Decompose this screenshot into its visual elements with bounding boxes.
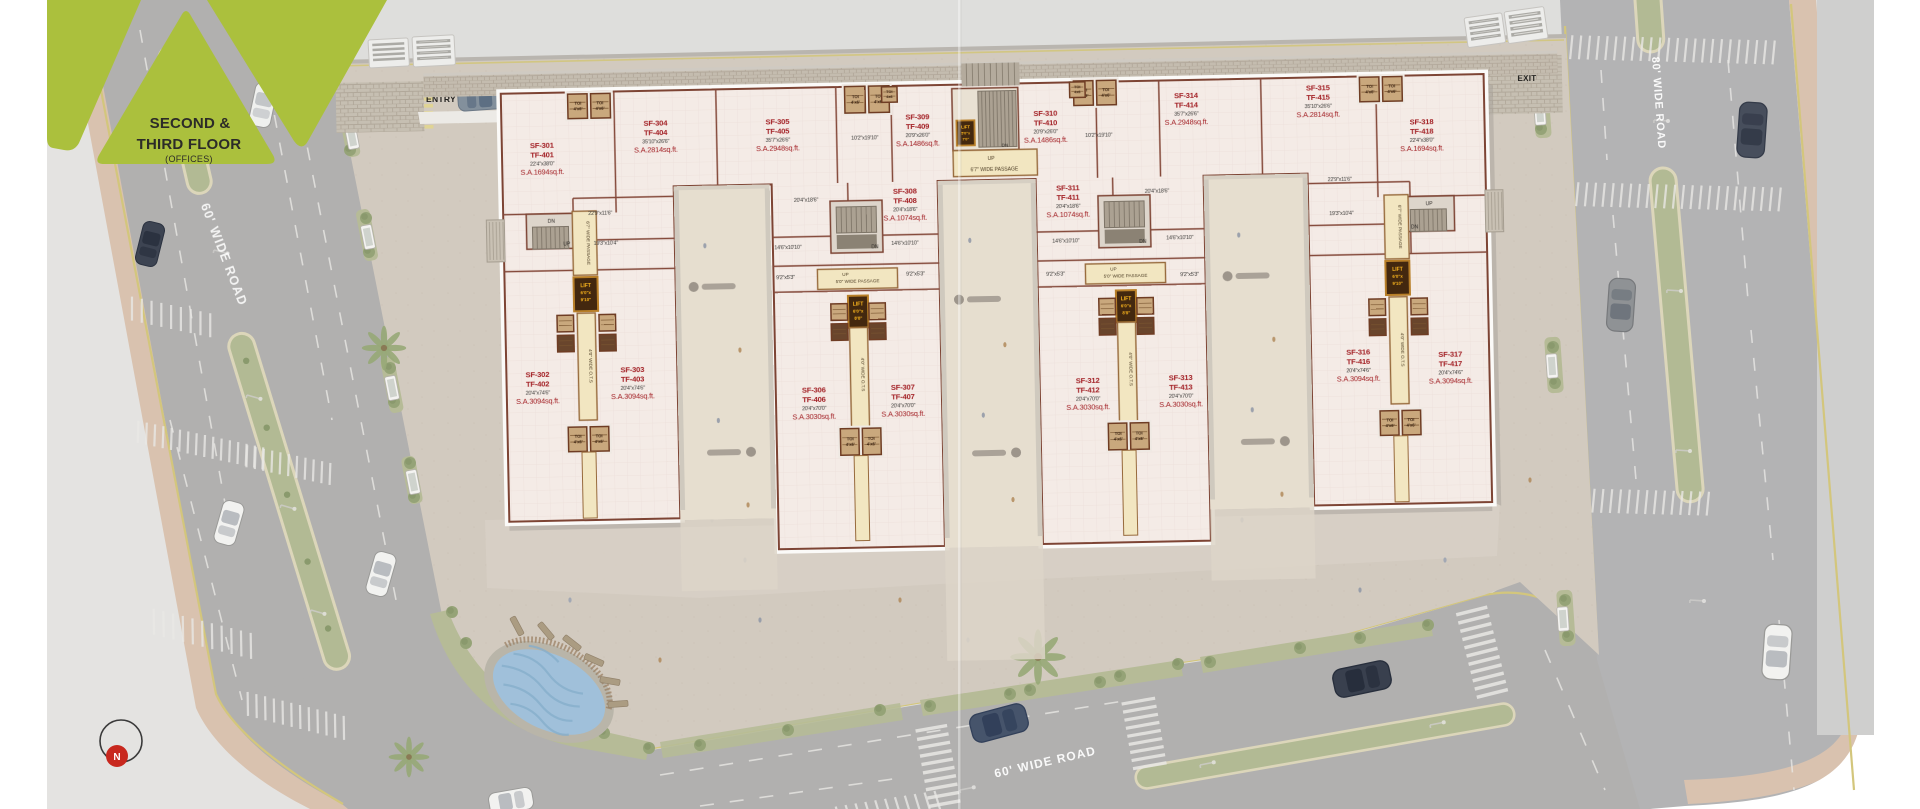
svg-text:5'0" WIDE PASSAGE: 5'0" WIDE PASSAGE [1104,273,1148,279]
svg-text:UP: UP [1426,201,1434,207]
svg-text:S.A.2814sq.ft.: S.A.2814sq.ft. [634,145,678,155]
svg-text:DN: DN [1411,224,1419,230]
svg-text:TF-404: TF-404 [644,128,668,137]
svg-text:TOI: TOI [596,100,603,105]
svg-text:TF-407: TF-407 [891,392,914,401]
svg-text:9'2"x5'3": 9'2"x5'3" [1180,272,1199,278]
svg-text:S.A.3094sq.ft.: S.A.3094sq.ft. [516,396,560,406]
svg-text:TOI: TOI [1366,84,1373,89]
svg-text:6'0"x: 6'0"x [1121,303,1132,308]
svg-text:TOI: TOI [1102,87,1109,92]
svg-text:19'3"x10'4": 19'3"x10'4" [1329,211,1354,217]
svg-text:20'4"x18'6": 20'4"x18'6" [794,197,819,203]
svg-text:4'x6': 4'x6' [846,442,855,447]
svg-text:6'7" WIDE PASSAGE: 6'7" WIDE PASSAGE [585,221,591,265]
svg-text:S.A.3030sq.ft.: S.A.3030sq.ft. [881,409,925,419]
svg-text:6'0"x: 6'0"x [1392,274,1403,279]
svg-text:4'x6': 4'x6' [1407,422,1416,427]
svg-text:TOI: TOI [575,434,582,439]
svg-text:LIFT: LIFT [580,283,591,289]
svg-text:LIFT: LIFT [1392,267,1403,273]
svg-text:4'x6': 4'x6' [867,441,876,446]
svg-text:TF-402: TF-402 [526,379,549,388]
svg-text:LIFT: LIFT [853,302,864,308]
svg-text:UP: UP [988,156,996,162]
svg-text:SF-308: SF-308 [893,186,917,195]
svg-text:4'0" WIDE O.T.S: 4'0" WIDE O.T.S [588,349,594,383]
svg-text:4'x6': 4'x6' [851,100,860,105]
svg-text:5'0" WIDE PASSAGE: 5'0" WIDE PASSAGE [836,278,880,284]
svg-text:SF-318: SF-318 [1410,117,1434,126]
svg-text:9'10": 9'10" [581,297,592,302]
svg-text:10'2"x19'10": 10'2"x19'10" [1085,133,1113,140]
svg-text:LIFT: LIFT [1121,296,1132,302]
svg-text:6'0"x: 6'0"x [853,309,864,314]
svg-text:TOI: TOI [875,94,882,99]
svg-text:4'x6': 4'x6' [1101,93,1110,98]
svg-text:9'2"x5'3": 9'2"x5'3" [776,275,795,281]
svg-text:S.A.1486sq.ft.: S.A.1486sq.ft. [896,138,940,148]
svg-text:4'x6': 4'x6' [1386,423,1395,428]
svg-text:20'4"x18'6": 20'4"x18'6" [1145,188,1170,194]
svg-text:SF-306: SF-306 [802,385,826,394]
svg-text:TOI: TOI [1115,431,1122,436]
svg-text:S.A.1694sq.ft.: S.A.1694sq.ft. [520,167,564,177]
svg-text:22'9"x11'6": 22'9"x11'6" [588,211,612,217]
svg-text:9'2"x5'3": 9'2"x5'3" [906,271,925,277]
svg-text:4'x6': 4'x6' [595,439,604,444]
svg-text:19'3"x10'4": 19'3"x10'4" [594,240,619,246]
svg-text:DN: DN [1002,143,1009,148]
svg-text:LIFT: LIFT [961,124,970,129]
svg-text:UP: UP [1110,266,1116,271]
svg-text:TF-412: TF-412 [1076,385,1099,394]
svg-text:TF-410: TF-410 [1034,118,1057,127]
svg-text:S.A.3094sq.ft.: S.A.3094sq.ft. [1337,374,1381,384]
svg-text:TF-406: TF-406 [802,395,825,404]
svg-text:4'x6': 4'x6' [1114,436,1123,441]
svg-text:SF-304: SF-304 [643,118,668,127]
svg-text:TF-416: TF-416 [1347,357,1370,366]
svg-text:SF-316: SF-316 [1346,347,1370,356]
svg-text:TF-409: TF-409 [906,122,929,131]
svg-text:TOI: TOI [868,436,875,441]
svg-text:SF-311: SF-311 [1056,183,1080,192]
svg-text:TOI: TOI [847,436,854,441]
svg-text:TF-414: TF-414 [1174,100,1198,109]
svg-text:TF-418: TF-418 [1410,127,1433,136]
svg-text:TF-413: TF-413 [1169,382,1192,391]
svg-text:10'2"x19'10": 10'2"x19'10" [851,135,879,142]
svg-text:TOI: TOI [886,90,892,94]
svg-text:N: N [113,752,120,763]
svg-text:14'6"x10'10": 14'6"x10'10" [891,240,919,247]
svg-text:TOI: TOI [596,433,603,438]
svg-text:S.A.1694sq.ft.: S.A.1694sq.ft. [1400,143,1444,153]
svg-text:TOI: TOI [852,94,859,99]
svg-text:SF-305: SF-305 [765,117,790,126]
svg-text:SF-310: SF-310 [1033,109,1057,118]
svg-text:6'0"x: 6'0"x [580,290,591,295]
svg-text:SF-314: SF-314 [1174,91,1199,100]
svg-text:TF-411: TF-411 [1056,193,1080,202]
svg-text:S.A.3030sq.ft.: S.A.3030sq.ft. [792,412,836,422]
svg-text:TF-408: TF-408 [893,196,916,205]
svg-text:TF-403: TF-403 [621,374,644,383]
svg-text:S.A.3030sq.ft.: S.A.3030sq.ft. [1159,399,1203,409]
svg-text:TOI: TOI [574,101,581,106]
svg-text:S.A.1074sq.ft.: S.A.1074sq.ft. [1046,209,1090,219]
svg-text:4'x6': 4'x6' [1365,89,1374,94]
svg-text:DN: DN [1139,239,1147,245]
svg-text:DN: DN [871,244,879,250]
svg-text:TF-417: TF-417 [1439,359,1462,368]
svg-text:EXIT: EXIT [1518,74,1537,83]
svg-text:TOI: TOI [1386,417,1393,422]
svg-text:UP: UP [563,241,571,247]
svg-text:4'0" WIDE O.T.S: 4'0" WIDE O.T.S [1128,352,1134,386]
svg-text:6'7" WIDE PASSAGE: 6'7" WIDE PASSAGE [1397,205,1403,249]
svg-text:SF-309: SF-309 [905,112,929,121]
svg-text:4'0" WIDE O.T.S: 4'0" WIDE O.T.S [1400,333,1406,367]
svg-text:4'x6': 4'x6' [596,106,605,111]
svg-text:S.A.3094sq.ft.: S.A.3094sq.ft. [611,391,655,401]
svg-text:4x6: 4x6 [886,95,892,99]
svg-text:8'8": 8'8" [1122,310,1130,315]
svg-text:S.A.1486sq.ft.: S.A.1486sq.ft. [1024,135,1068,145]
svg-text:S.A.1074sq.ft.: S.A.1074sq.ft. [883,213,927,223]
svg-text:SF-303: SF-303 [620,365,644,374]
svg-text:TOI: TOI [1407,417,1414,422]
svg-text:22'9"x11'6": 22'9"x11'6" [1328,177,1352,183]
svg-text:SF-301: SF-301 [530,141,555,150]
svg-text:9'10": 9'10" [1392,281,1403,286]
svg-text:4'0" WIDE O.T.S: 4'0" WIDE O.T.S [860,358,866,392]
svg-text:SF-315: SF-315 [1306,83,1331,92]
svg-text:TOI: TOI [1074,85,1080,89]
svg-text:TF-405: TF-405 [766,126,790,135]
svg-text:6'7" WIDE PASSAGE: 6'7" WIDE PASSAGE [971,166,1019,173]
svg-text:14'6"x10'10": 14'6"x10'10" [774,245,802,252]
svg-text:DN: DN [548,219,556,225]
svg-text:4x6: 4x6 [1074,90,1080,94]
svg-text:4'x6': 4'x6' [1387,89,1396,94]
svg-text:4'x6': 4'x6' [1135,436,1144,441]
svg-text:S.A.2814sq.ft.: S.A.2814sq.ft. [1296,109,1340,119]
svg-text:4'x6': 4'x6' [574,439,583,444]
svg-text:SF-302: SF-302 [525,370,549,379]
svg-text:9'2"x5'3": 9'2"x5'3" [1046,271,1065,277]
svg-text:TOI: TOI [1388,83,1395,88]
svg-text:7'0": 7'0" [962,137,969,141]
svg-text:UP: UP [842,272,848,277]
svg-text:S.A.3030sq.ft.: S.A.3030sq.ft. [1066,402,1110,412]
svg-text:5'0"x: 5'0"x [961,131,971,135]
svg-text:14'6"x10'10": 14'6"x10'10" [1166,235,1194,242]
svg-text:SECOND &: SECOND & [150,115,231,132]
svg-text:8'8": 8'8" [854,316,862,321]
svg-text:TF-415: TF-415 [1306,93,1330,102]
svg-text:TOI: TOI [1136,430,1143,435]
svg-text:SF-313: SF-313 [1169,373,1193,382]
svg-text:S.A.2948sq.ft.: S.A.2948sq.ft. [1165,117,1209,127]
svg-text:S.A.3094sq.ft.: S.A.3094sq.ft. [1429,376,1473,386]
svg-text:4'x6': 4'x6' [574,106,583,111]
svg-text:(OFFICES): (OFFICES) [165,154,213,164]
svg-text:TF-401: TF-401 [530,150,554,159]
svg-text:14'6"x10'10": 14'6"x10'10" [1052,238,1080,245]
svg-text:SF-317: SF-317 [1438,350,1462,359]
svg-text:SF-312: SF-312 [1076,376,1100,385]
svg-text:SF-307: SF-307 [891,383,915,392]
svg-text:S.A.2948sq.ft.: S.A.2948sq.ft. [756,143,800,153]
svg-text:THIRD FLOOR: THIRD FLOOR [137,136,242,153]
